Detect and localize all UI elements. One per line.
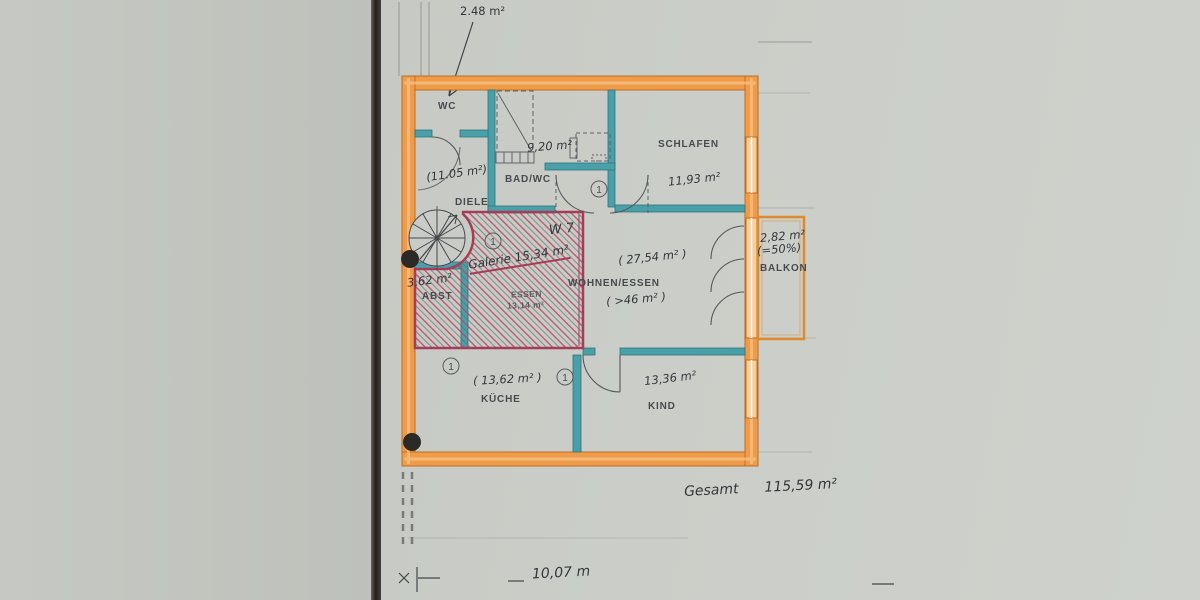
svg-text:1: 1 <box>562 373 568 384</box>
door-marker: 1 <box>591 181 607 197</box>
svg-text:1: 1 <box>596 185 602 196</box>
bathtub <box>497 91 533 152</box>
door-marker: 1 <box>485 233 501 249</box>
floor-plan-photo: 1 1 1 1 WC BAD/WC SCHLAFEN DIELE BALKON … <box>0 0 1200 600</box>
window <box>746 137 757 418</box>
balcony-outline <box>758 217 804 339</box>
radiator <box>496 152 534 163</box>
door-marker: 1 <box>557 369 573 385</box>
pencil-dashed-lines <box>403 472 412 548</box>
dimension-line <box>399 567 894 592</box>
svg-text:1: 1 <box>490 237 496 248</box>
door-marker: 1 <box>443 358 459 374</box>
floor-plan-drawing: 1 1 1 1 <box>0 0 1200 600</box>
svg-text:1: 1 <box>448 362 454 373</box>
sink <box>570 133 610 161</box>
